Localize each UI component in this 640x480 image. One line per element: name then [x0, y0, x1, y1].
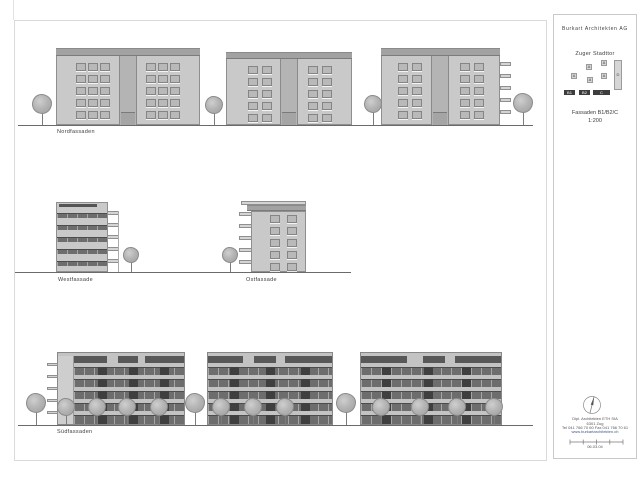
window-frame-dark: [160, 379, 169, 387]
window: [170, 63, 180, 71]
site-plan-block-c: C: [593, 90, 610, 95]
attic-gap: [107, 356, 118, 363]
window-frame-dark: [382, 415, 391, 424]
window-frame-dark: [230, 367, 239, 375]
window: [76, 75, 86, 83]
balcony-slab: [239, 248, 252, 252]
window: [146, 99, 156, 107]
window: [170, 99, 180, 107]
window: [88, 63, 98, 71]
window: [76, 63, 86, 71]
tree-foliage: [364, 95, 382, 113]
window-frame-dark: [301, 415, 310, 424]
site-plan-block-b2: B2: [579, 90, 590, 95]
window: [287, 239, 297, 247]
window: [248, 102, 258, 110]
window: [100, 75, 110, 83]
ground-line: [18, 125, 533, 126]
window-frame-dark: [230, 379, 239, 387]
sheet-title: Fassaden B1/B2/C: [554, 110, 636, 116]
window: [308, 66, 318, 74]
attic-gap: [138, 356, 146, 363]
website-text: www.burkartarchitekten.ch: [554, 430, 636, 434]
window-frame-dark: [266, 391, 275, 399]
window-frame-dark: [424, 379, 433, 387]
window-frame-dark: [230, 403, 239, 411]
window: [146, 111, 156, 119]
balcony-slab: [500, 86, 511, 90]
drawing-area: NordfassadenWestfassadeOstfassadeSüdfass…: [0, 0, 640, 480]
site-key-plan: AAAAADB1B2C: [554, 15, 636, 458]
tree-foliage: [88, 398, 106, 416]
window: [460, 75, 470, 83]
window: [474, 99, 484, 107]
window: [412, 99, 422, 107]
window: [460, 87, 470, 95]
tree-foliage: [32, 94, 52, 114]
tree-foliage: [276, 398, 294, 416]
window-frame-dark: [382, 367, 391, 375]
balcony-slab: [500, 110, 511, 114]
window-band: [57, 225, 107, 230]
window: [270, 251, 280, 259]
attic-band: [361, 356, 501, 363]
window: [100, 63, 110, 71]
window-frame-dark: [129, 367, 138, 375]
window-frame-dark: [382, 379, 391, 387]
balcony-edge-line: [118, 211, 119, 272]
window-frame-dark: [230, 415, 239, 424]
attic-gap: [445, 356, 455, 363]
site-plan-block-b1: B1: [564, 90, 575, 95]
balcony-slab: [239, 224, 252, 228]
window: [322, 66, 332, 74]
window: [308, 78, 318, 86]
elevation-label: Westfassade: [58, 277, 148, 285]
site-plan-block-a: A: [601, 60, 607, 66]
window: [158, 63, 168, 71]
tree-foliage: [123, 247, 139, 263]
attic-band: [208, 356, 332, 363]
sheet-scale: 1:200: [554, 118, 636, 124]
window: [460, 63, 470, 71]
window-frame-dark: [160, 367, 169, 375]
window: [100, 99, 110, 107]
window: [248, 114, 258, 122]
window: [308, 90, 318, 98]
balcony-slab: [239, 212, 252, 216]
window: [76, 87, 86, 95]
balcony-slab: [239, 260, 252, 264]
window: [412, 111, 422, 119]
window-frame-dark: [462, 379, 471, 387]
window-frame-dark: [301, 391, 310, 399]
balcony-slab: [500, 98, 511, 102]
window: [287, 215, 297, 223]
window: [100, 87, 110, 95]
window: [146, 75, 156, 83]
window: [262, 78, 272, 86]
ground-line: [15, 272, 351, 273]
window-frame-dark: [462, 415, 471, 424]
window: [398, 75, 408, 83]
window: [287, 251, 297, 259]
window-band: [57, 261, 107, 266]
window: [76, 111, 86, 119]
window: [100, 111, 110, 119]
tree-foliage: [336, 393, 356, 413]
window-frame-dark: [424, 391, 433, 399]
window-frame-dark: [129, 379, 138, 387]
window: [170, 75, 180, 83]
window-frame-dark: [301, 367, 310, 375]
window: [262, 102, 272, 110]
window-frame-dark: [424, 415, 433, 424]
window-frame-dark: [424, 367, 433, 375]
attic-gap: [276, 356, 285, 363]
site-plan-block-a: A: [587, 77, 593, 83]
tree-foliage: [448, 398, 466, 416]
tree-foliage: [485, 398, 503, 416]
window-frame-dark: [98, 415, 107, 424]
window: [474, 63, 484, 71]
window: [158, 111, 168, 119]
site-plan-block-a: A: [586, 64, 592, 70]
attic-gap: [407, 356, 422, 363]
tree-foliage: [244, 398, 262, 416]
window-frame-dark: [266, 379, 275, 387]
tree-foliage: [118, 398, 136, 416]
attic-band: [74, 356, 184, 363]
tree-foliage: [222, 247, 238, 263]
window-frame-dark: [301, 403, 310, 411]
window: [270, 227, 280, 235]
balcony-slab: [47, 363, 58, 366]
tree-foliage: [26, 393, 46, 413]
window-band: [57, 249, 107, 254]
elevation-label: Südfassaden: [57, 429, 147, 437]
window: [262, 66, 272, 74]
window: [322, 78, 332, 86]
window: [287, 227, 297, 235]
window: [398, 111, 408, 119]
window: [170, 87, 180, 95]
window-frame-dark: [266, 403, 275, 411]
window: [270, 263, 280, 271]
north-arrow-icon: [581, 394, 603, 416]
entrance-door: [282, 112, 296, 125]
balcony-slab: [47, 387, 58, 390]
window: [170, 111, 180, 119]
balcony-slab: [500, 74, 511, 78]
window: [322, 102, 332, 110]
window: [287, 263, 297, 271]
window-frame-dark: [98, 367, 107, 375]
window: [398, 87, 408, 95]
balcony-slab: [47, 399, 58, 402]
window-frame-dark: [160, 415, 169, 424]
elevation-label: Nordfassaden: [57, 129, 147, 137]
window-frame-dark: [98, 379, 107, 387]
window: [262, 114, 272, 122]
window-frame-dark: [301, 379, 310, 387]
site-plan-block-d: D: [614, 60, 622, 90]
window: [412, 63, 422, 71]
site-plan-block-a: A: [601, 73, 607, 79]
window: [474, 87, 484, 95]
tree-foliage: [185, 393, 205, 413]
balcony-slab: [47, 375, 58, 378]
window: [398, 63, 408, 71]
attic-gap: [243, 356, 254, 363]
window: [76, 99, 86, 107]
window-frame-dark: [129, 415, 138, 424]
roof-band: [381, 48, 500, 56]
balcony-slab: [239, 236, 252, 240]
window: [88, 87, 98, 95]
window: [248, 78, 258, 86]
window: [308, 114, 318, 122]
ground-line: [18, 425, 533, 426]
balcony-slab: [500, 62, 511, 66]
attic-window: [59, 204, 97, 207]
window-frame-dark: [266, 415, 275, 424]
window: [322, 114, 332, 122]
window: [88, 75, 98, 83]
balcony-slab: [47, 411, 58, 414]
window: [158, 87, 168, 95]
window: [262, 90, 272, 98]
window: [88, 99, 98, 107]
title-block: Burkart Architekten AG Zuger Stadttor AA…: [553, 14, 637, 459]
window-frame-dark: [230, 391, 239, 399]
roof-band: [56, 48, 200, 56]
entrance-door: [121, 112, 135, 125]
site-plan-block-a: A: [571, 73, 577, 79]
tree-foliage: [372, 398, 390, 416]
window: [474, 111, 484, 119]
window: [460, 99, 470, 107]
window: [322, 90, 332, 98]
window: [158, 99, 168, 107]
window: [88, 111, 98, 119]
window: [158, 75, 168, 83]
window-frame-dark: [462, 391, 471, 399]
window: [398, 99, 408, 107]
elevation-label: Ostfassade: [246, 277, 336, 285]
entrance-door: [433, 112, 447, 125]
tree-foliage: [411, 398, 429, 416]
tree-foliage: [212, 398, 230, 416]
tree-foliage: [57, 398, 75, 416]
window: [146, 63, 156, 71]
sheet-date: 06.03.04: [554, 445, 636, 449]
tree-foliage: [513, 93, 533, 113]
window-frame-dark: [462, 367, 471, 375]
window: [474, 75, 484, 83]
window: [412, 87, 422, 95]
window-frame-dark: [266, 367, 275, 375]
window: [308, 102, 318, 110]
roof-band: [226, 52, 352, 59]
window: [270, 239, 280, 247]
window: [460, 111, 470, 119]
window: [412, 75, 422, 83]
window: [146, 87, 156, 95]
tree-foliage: [150, 398, 168, 416]
window: [270, 215, 280, 223]
tree-foliage: [205, 96, 223, 114]
window: [248, 90, 258, 98]
window-band: [57, 237, 107, 242]
window: [248, 66, 258, 74]
window-band: [57, 213, 107, 218]
